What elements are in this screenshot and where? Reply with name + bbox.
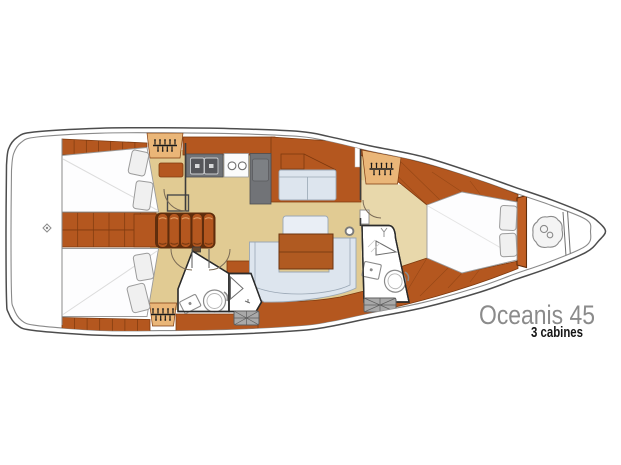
svg-text:3 cabines: 3 cabines (531, 324, 583, 341)
